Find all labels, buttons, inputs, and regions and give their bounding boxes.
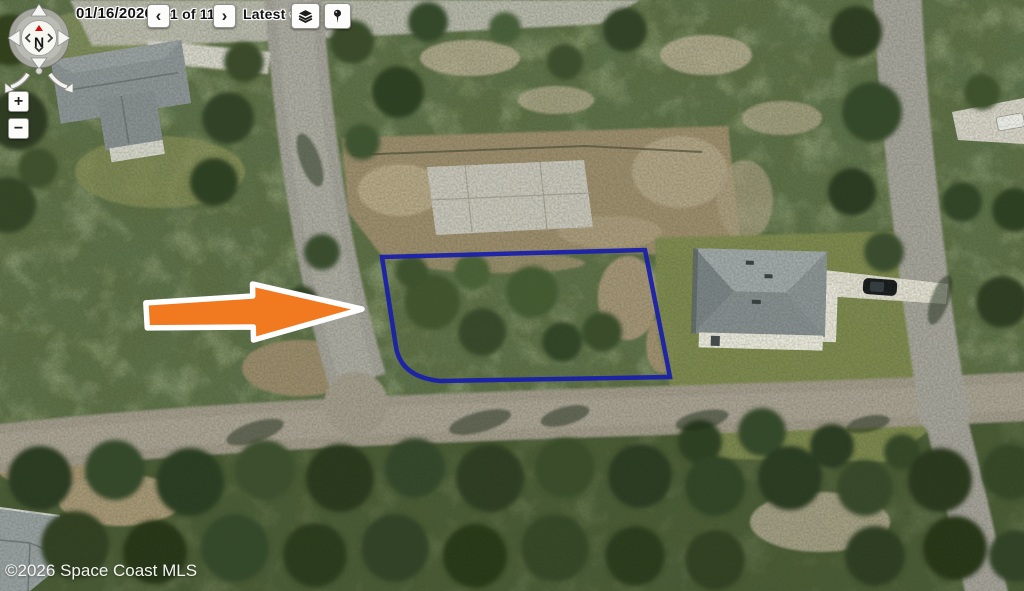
next-photo-button[interactable]: › bbox=[213, 4, 236, 28]
latest-dropdown-label: Latest bbox=[243, 6, 285, 22]
rotate-right-icon[interactable] bbox=[50, 74, 73, 93]
zoom-out-button[interactable]: − bbox=[8, 118, 29, 139]
copyright-label: ©2026 Space Coast MLS bbox=[5, 561, 197, 581]
compass-control[interactable]: N bbox=[4, 2, 74, 94]
latest-dropdown[interactable]: Latest ▼ bbox=[243, 6, 297, 22]
layers-icon bbox=[298, 6, 313, 26]
map-pin-icon bbox=[331, 6, 344, 26]
satellite-imagery[interactable] bbox=[0, 0, 1024, 591]
layers-button[interactable] bbox=[291, 3, 320, 29]
photo-date-label: 01/16/2026 bbox=[76, 5, 153, 22]
zoom-in-button[interactable]: + bbox=[8, 91, 29, 112]
map-pin-button[interactable] bbox=[324, 3, 351, 29]
photo-grain bbox=[0, 0, 1024, 591]
photo-counter-label: 1 of 11 bbox=[170, 6, 214, 22]
aerial-map-viewer: 01/16/2026 ‹ 1 of 11 › Latest ▼ PDF bbox=[0, 0, 1024, 591]
previous-photo-button[interactable]: ‹ bbox=[147, 4, 170, 28]
